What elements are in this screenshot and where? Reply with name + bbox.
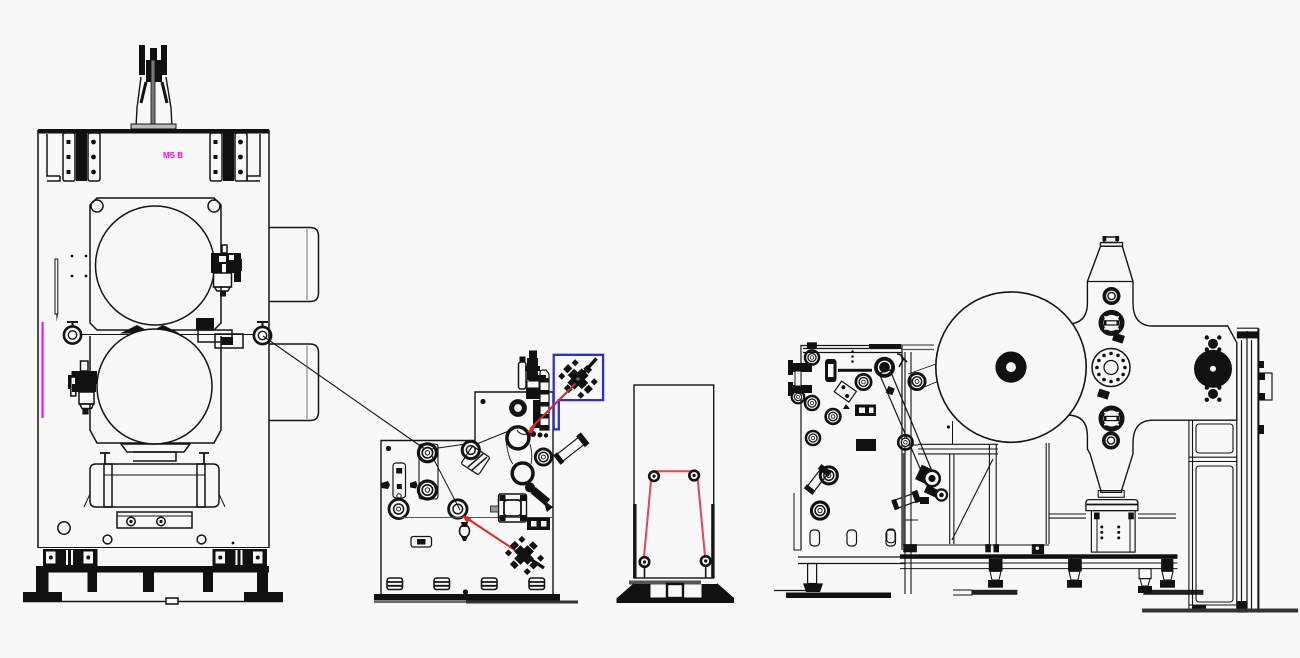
svg-text:MS B: MS B xyxy=(163,151,183,160)
